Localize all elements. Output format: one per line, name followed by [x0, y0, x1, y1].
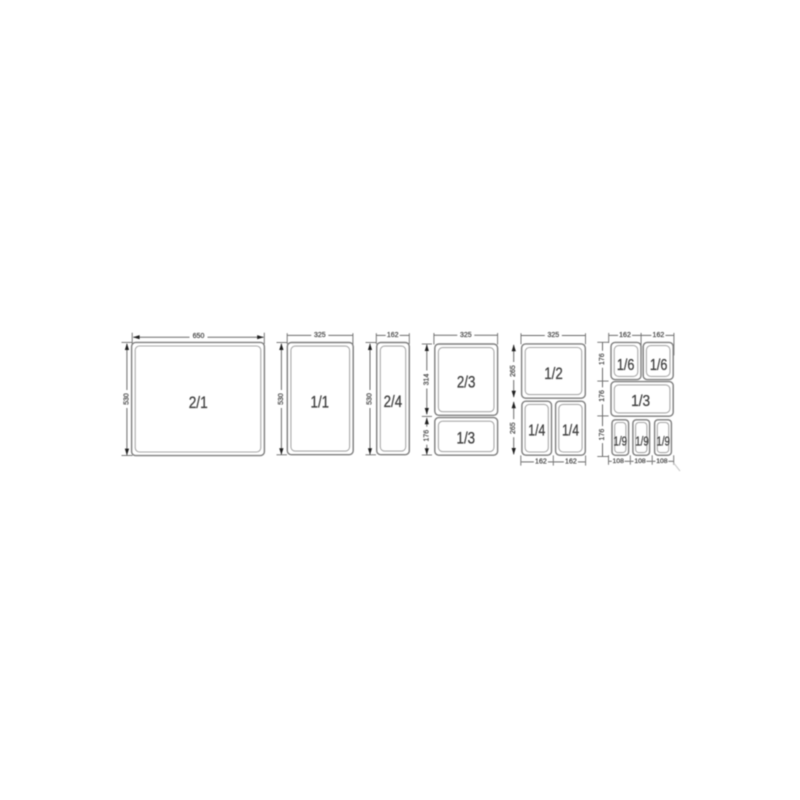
svg-text:1/9: 1/9 — [635, 434, 649, 449]
svg-text:1/3: 1/3 — [631, 393, 650, 410]
svg-text:162: 162 — [565, 459, 577, 466]
svg-text:2/1: 2/1 — [189, 393, 208, 412]
svg-text:162: 162 — [387, 332, 399, 339]
svg-text:530: 530 — [278, 393, 285, 405]
svg-text:1/4: 1/4 — [528, 422, 545, 439]
svg-text:325: 325 — [547, 332, 559, 339]
svg-text:2/4: 2/4 — [384, 393, 403, 411]
svg-text:162: 162 — [535, 459, 547, 466]
svg-text:176: 176 — [599, 353, 606, 365]
svg-text:162: 162 — [653, 332, 665, 339]
svg-text:314: 314 — [423, 374, 430, 386]
svg-text:1/2: 1/2 — [544, 365, 563, 383]
svg-text:176: 176 — [423, 430, 430, 442]
svg-text:265: 265 — [510, 365, 517, 377]
svg-text:530: 530 — [367, 393, 374, 405]
svg-text:1/3: 1/3 — [457, 429, 476, 447]
svg-text:1/4: 1/4 — [562, 422, 579, 439]
svg-text:108: 108 — [634, 458, 646, 465]
svg-text:162: 162 — [619, 332, 631, 339]
svg-text:1/9: 1/9 — [614, 434, 628, 449]
svg-text:108: 108 — [656, 458, 668, 465]
svg-text:1/6: 1/6 — [617, 357, 635, 374]
svg-text:2/3: 2/3 — [457, 374, 476, 392]
svg-text:1/1: 1/1 — [311, 394, 330, 412]
svg-text:1/9: 1/9 — [656, 434, 670, 449]
svg-text:1/6: 1/6 — [650, 357, 668, 374]
svg-text:325: 325 — [460, 332, 472, 339]
svg-text:530: 530 — [123, 393, 130, 405]
svg-text:108: 108 — [613, 458, 625, 465]
svg-text:176: 176 — [599, 429, 606, 441]
svg-text:325: 325 — [314, 332, 326, 339]
svg-text:265: 265 — [510, 422, 517, 434]
svg-text:650: 650 — [193, 333, 205, 340]
svg-text:176: 176 — [599, 390, 606, 402]
